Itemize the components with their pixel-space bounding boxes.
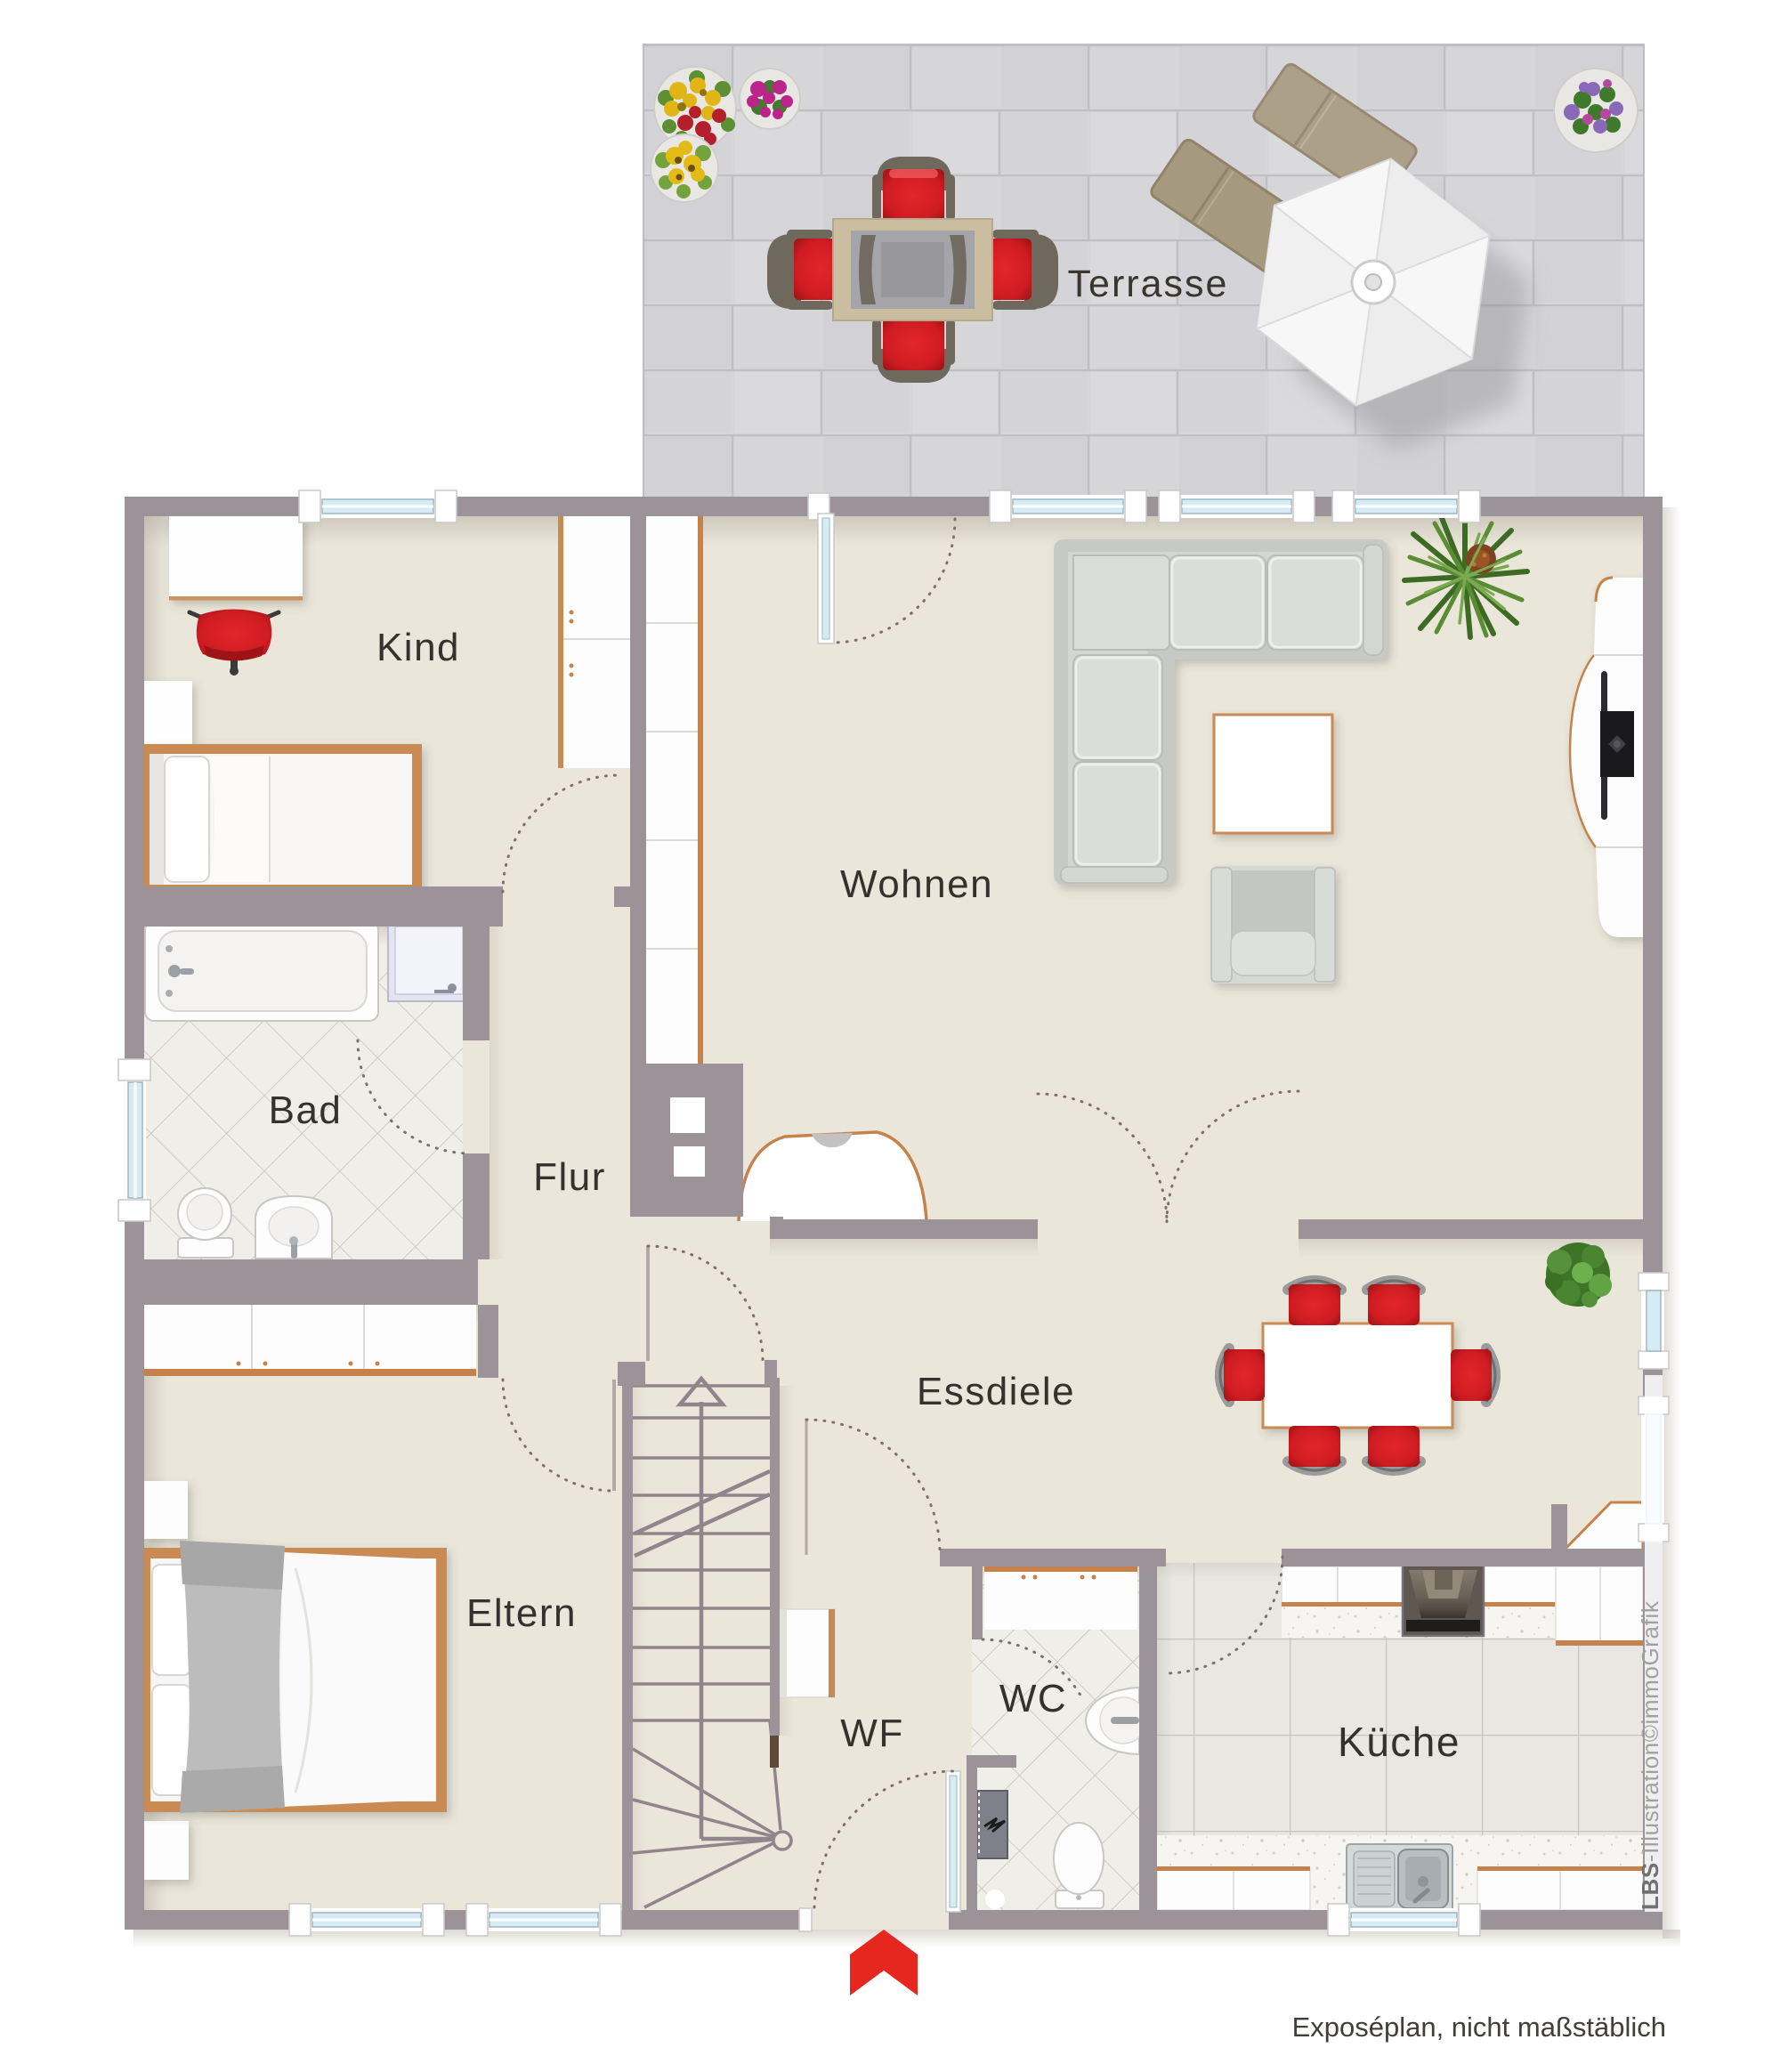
svg-text:Bad: Bad [269,1089,343,1132]
svg-text:Exposéplan, nicht maßstäblich: Exposéplan, nicht maßstäblich [1292,2011,1666,2043]
svg-text:Essdiele: Essdiele [917,1370,1075,1413]
svg-text:LBS-Illustration©immoGrafik: LBS-Illustration©immoGrafik [1637,1600,1663,1910]
svg-text:WF: WF [840,1712,903,1755]
svg-text:Flur: Flur [533,1155,606,1199]
svg-text:Terrasse: Terrasse [1068,263,1229,305]
svg-text:Eltern: Eltern [466,1591,577,1635]
svg-text:WC: WC [999,1677,1067,1720]
svg-text:Kind: Kind [376,626,460,669]
svg-text:Küche: Küche [1338,1719,1460,1765]
svg-text:Wohnen: Wohnen [840,862,993,906]
